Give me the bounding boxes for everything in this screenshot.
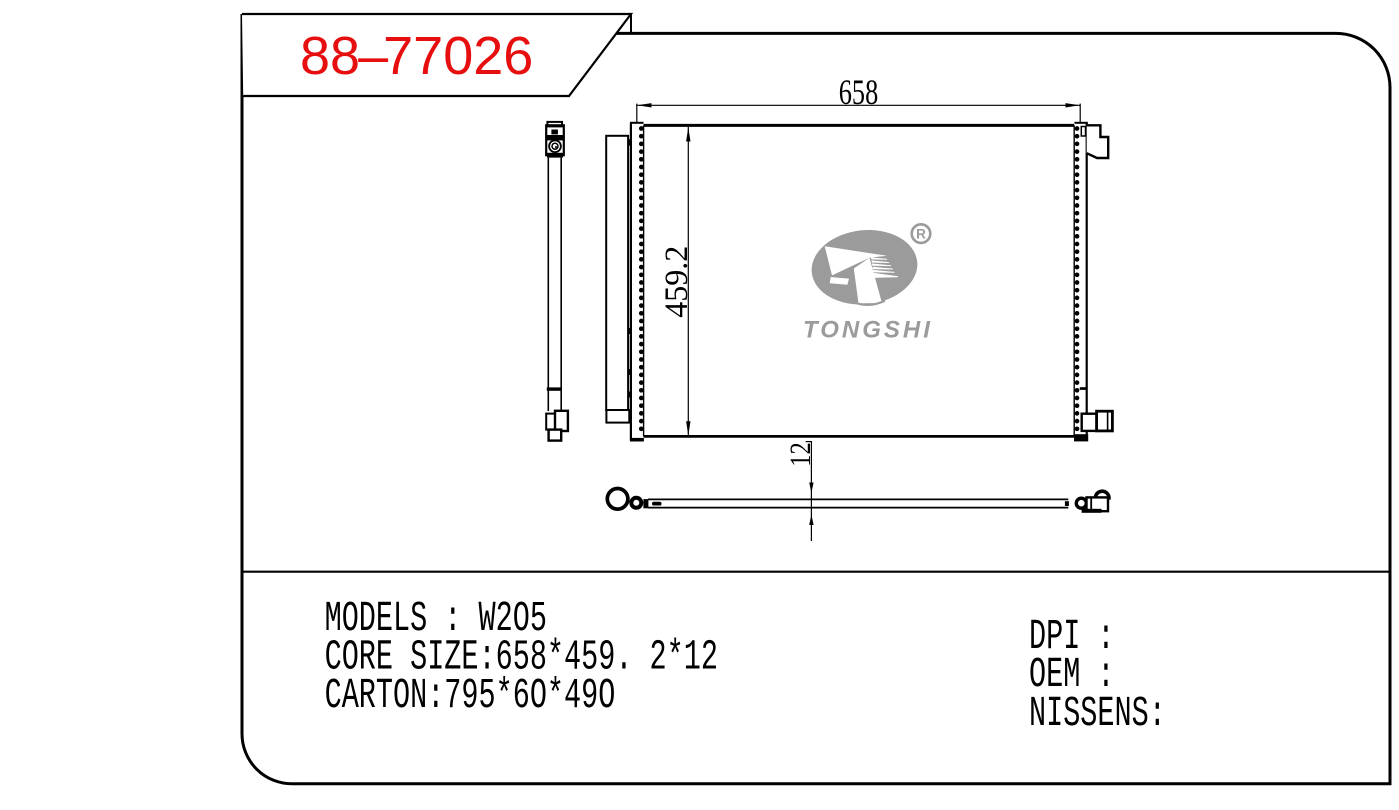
svg-text:88–77026: 88–77026 — [300, 26, 533, 86]
svg-text:R: R — [916, 227, 926, 242]
svg-text:459.2: 459.2 — [659, 246, 696, 318]
svg-text:CARTON:795*6O*49O: CARTON:795*6O*49O — [325, 672, 616, 720]
svg-text:TONGSHI: TONGSHI — [803, 317, 933, 344]
svg-text:NISSENS:: NISSENS: — [1029, 690, 1166, 738]
svg-text:658: 658 — [839, 72, 878, 112]
svg-text:12: 12 — [784, 442, 817, 467]
